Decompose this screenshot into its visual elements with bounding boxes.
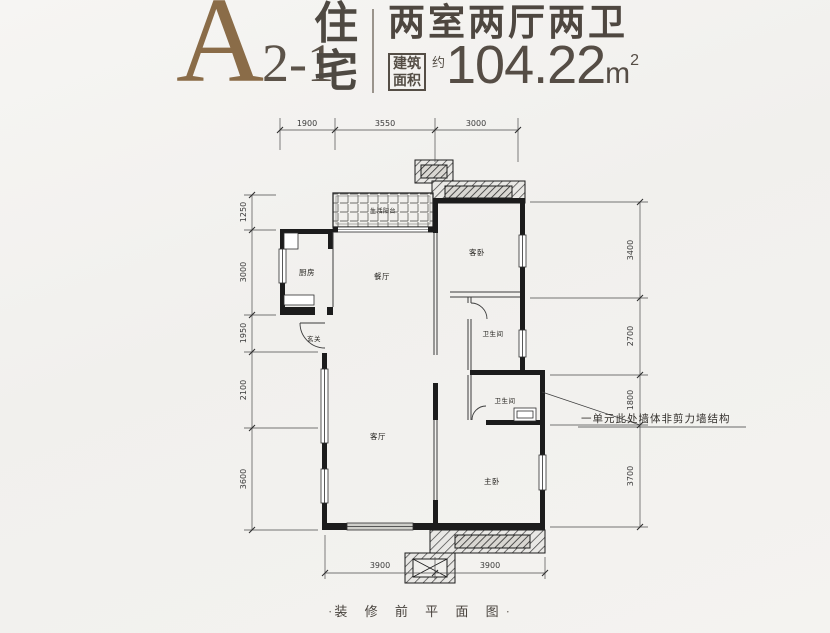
caption-dot-right: · (506, 604, 512, 619)
floorplan-drawing: 生活阳台 厨房 餐厅 玄关 客卧 卫生间 卫生间 客厅 主卧 (230, 105, 800, 601)
walls (280, 198, 545, 530)
dim-left-3: 1950 (239, 323, 248, 343)
room-label-guest-bedroom: 客卧 (469, 247, 485, 257)
dim-top-1: 1900 (297, 119, 317, 128)
bathroom-upper-door-arc (471, 303, 487, 319)
dim-left-1: 1250 (239, 202, 248, 222)
residence-char-bottom: 宅 (314, 50, 358, 94)
approx-char: 约 (432, 52, 445, 71)
room-label-living: 客厅 (370, 431, 386, 441)
header: A 2-1 住 宅 两室两厅两卫 建筑 面积 约 104.22m2 (0, 0, 830, 105)
room-label-master-bedroom: 主卧 (484, 476, 500, 486)
header-divider (372, 9, 374, 93)
dim-left-5: 3600 (239, 469, 248, 489)
block-letter: A (176, 0, 264, 102)
dim-bottom-1: 3900 (370, 561, 390, 570)
caption-text: 装 修 前 平 面 图 (334, 604, 505, 619)
room-label-kitchen: 厨房 (299, 267, 315, 277)
dim-bottom-2: 3900 (480, 561, 500, 570)
dim-right-2: 2700 (626, 326, 635, 346)
area-exponent: 2 (630, 52, 639, 69)
bathroom-sink-inner (517, 411, 533, 418)
dim-right-3: 1800 (626, 390, 635, 410)
dim-top-3: 3000 (466, 119, 486, 128)
room-label-dining: 餐厅 (374, 272, 390, 281)
kitchen-appliance (284, 233, 298, 249)
kitchen-counter (284, 295, 314, 305)
room-label-balcony: 生活阳台 (370, 207, 396, 215)
windows (279, 235, 546, 530)
dim-top-2: 3550 (375, 119, 395, 128)
partition-walls (333, 232, 520, 500)
dim-left-4: 2100 (239, 380, 248, 400)
room-label-bathroom-upper: 卫生间 (483, 329, 504, 338)
area-unit: m (605, 57, 630, 90)
room-label-bathroom-lower: 卫生间 (495, 396, 516, 405)
area-value: 104.22m2 (446, 36, 639, 95)
bathroom-lower-door-arc (472, 406, 486, 420)
residence-char-top: 住 (314, 2, 358, 46)
plan-caption: ·装 修 前 平 面 图· (230, 601, 610, 620)
dim-right-1: 3400 (626, 240, 635, 260)
wall-annotation: 一单元此处墙体非剪力墙结构 (542, 392, 746, 427)
room-label-foyer: 玄关 (307, 334, 321, 343)
area-label-line2: 面积 (390, 73, 424, 90)
area-label-line1: 建筑 (390, 56, 424, 73)
dim-left-2: 3000 (239, 262, 248, 282)
annotation-text: 一单元此处墙体非剪力墙结构 (581, 412, 731, 425)
dim-right-4: 3700 (626, 466, 635, 486)
area-label-box: 建筑 面积 (388, 53, 426, 91)
floorplan-page: A 2-1 住 宅 两室两厅两卫 建筑 面积 约 104.22m2 (0, 0, 830, 633)
